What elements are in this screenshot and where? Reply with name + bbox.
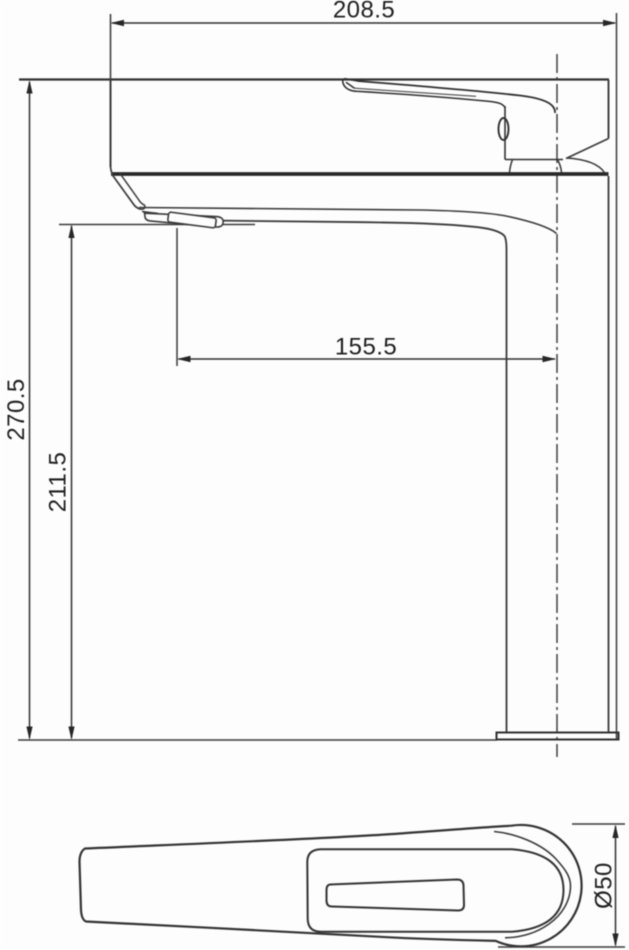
svg-text:Ø50: Ø50 (591, 862, 618, 909)
svg-text:270.5: 270.5 (3, 378, 30, 440)
svg-text:155.5: 155.5 (335, 334, 397, 361)
svg-text:211.5: 211.5 (45, 452, 72, 513)
svg-text:208.5: 208.5 (333, 0, 395, 24)
